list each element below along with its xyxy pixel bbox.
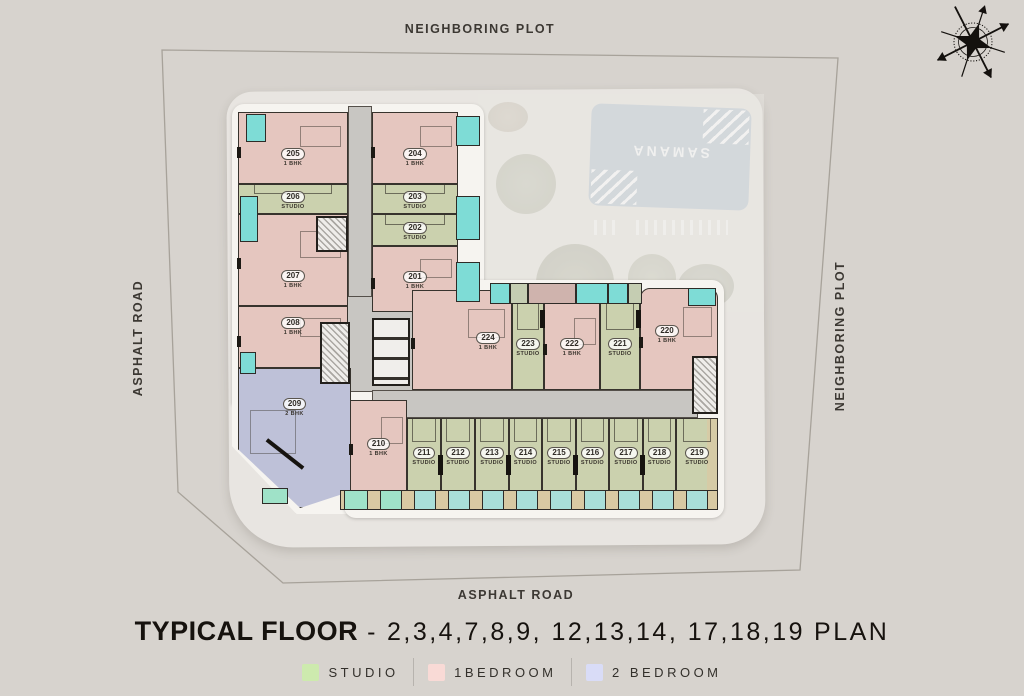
wall-segment bbox=[506, 455, 511, 475]
wall-segment bbox=[438, 455, 443, 475]
compass-rose-icon bbox=[930, 4, 1016, 80]
corridor-vertical bbox=[348, 106, 372, 298]
unit-204: 2041 BHK bbox=[372, 112, 458, 184]
legend-item-1bedroom: 1BEDROOM bbox=[428, 664, 556, 681]
balcony bbox=[628, 283, 642, 304]
balcony bbox=[246, 114, 266, 142]
balcony bbox=[414, 490, 436, 510]
balcony bbox=[584, 490, 606, 510]
legend-item-studio: STUDIO bbox=[302, 664, 398, 681]
pool-loungers bbox=[636, 220, 728, 235]
page-title: TYPICAL FLOOR - 2,3,4,7,8,9, 12,13,14, 1… bbox=[0, 616, 1024, 647]
legend: STUDIO 1BEDROOM 2 BEDROOM bbox=[0, 658, 1024, 686]
balcony bbox=[688, 288, 716, 306]
landscape-blob bbox=[488, 102, 528, 132]
pool-brand-text: SAMANA bbox=[590, 141, 750, 163]
legend-divider bbox=[571, 658, 573, 686]
wall-segment bbox=[540, 310, 545, 328]
staircase-core bbox=[692, 356, 718, 414]
unit-212: 212STUDIO bbox=[441, 418, 475, 492]
unit-215: 215STUDIO bbox=[542, 418, 576, 492]
wall-segment bbox=[636, 310, 641, 328]
balcony bbox=[240, 196, 258, 242]
elevator-bank bbox=[372, 318, 410, 386]
balcony bbox=[344, 490, 368, 510]
balcony bbox=[652, 490, 674, 510]
swimming-pool: SAMANA bbox=[588, 103, 751, 211]
balcony bbox=[456, 262, 480, 302]
balcony bbox=[686, 490, 708, 510]
neighboring-plot-label-top: NEIGHBORING PLOT bbox=[405, 22, 555, 36]
pool-steps-marking bbox=[590, 169, 637, 205]
balcony bbox=[608, 283, 628, 304]
unit-210: 2101 BHK bbox=[350, 400, 407, 492]
staircase-core bbox=[316, 216, 348, 252]
balcony bbox=[490, 283, 510, 304]
pool-loungers bbox=[594, 220, 620, 235]
unit-211: 211STUDIO bbox=[407, 418, 441, 492]
unit-213: 213STUDIO bbox=[475, 418, 509, 492]
title-floor-numbers: 2,3,4,7,8,9, 12,13,14, 17,18,19 bbox=[387, 618, 805, 647]
asphalt-road-label-bottom: ASPHALT ROAD bbox=[458, 588, 574, 602]
legend-item-2bedroom: 2 BEDROOM bbox=[586, 664, 722, 681]
balcony bbox=[456, 196, 480, 240]
studio-color-swatch bbox=[302, 664, 319, 681]
balcony bbox=[482, 490, 504, 510]
balcony bbox=[380, 490, 402, 510]
balcony bbox=[240, 352, 256, 374]
unit-214: 214STUDIO bbox=[509, 418, 542, 492]
balcony bbox=[262, 488, 288, 504]
balcony bbox=[576, 283, 608, 304]
staircase-core bbox=[320, 322, 350, 384]
asphalt-road-label-left: ASPHALT ROAD bbox=[131, 280, 145, 396]
balcony bbox=[448, 490, 470, 510]
neighboring-plot-label-right: NEIGHBORING PLOT bbox=[833, 261, 847, 411]
title-main: TYPICAL FLOOR bbox=[135, 616, 359, 647]
legend-divider bbox=[413, 658, 415, 686]
corridor-horizontal bbox=[372, 390, 698, 418]
one-bedroom-color-swatch bbox=[428, 664, 445, 681]
unit-216: 216STUDIO bbox=[576, 418, 609, 492]
unit-221: 221STUDIO bbox=[600, 302, 640, 390]
unit-224: 2241 BHK bbox=[412, 290, 512, 390]
balcony bbox=[528, 283, 576, 304]
unit-217: 217STUDIO bbox=[609, 418, 643, 492]
balcony bbox=[550, 490, 572, 510]
unit-202: 202STUDIO bbox=[372, 214, 458, 246]
balcony bbox=[510, 283, 528, 304]
two-bedroom-color-swatch bbox=[586, 664, 603, 681]
title-suffix: PLAN bbox=[814, 618, 889, 647]
wall-segment bbox=[573, 455, 578, 475]
unit-222: 2221 BHK bbox=[544, 302, 600, 390]
wall-segment bbox=[640, 455, 645, 475]
balcony bbox=[618, 490, 640, 510]
floor-plan-page: SAMANA 2051 BHK 206STUDIO 2071 BHK 2081 … bbox=[0, 0, 1024, 696]
title-separator: - bbox=[367, 618, 378, 647]
balcony bbox=[516, 490, 538, 510]
unit-219: 219STUDIO bbox=[676, 418, 718, 492]
balcony bbox=[456, 116, 480, 146]
landscape-blob bbox=[496, 154, 556, 214]
pool-steps-marking bbox=[703, 109, 750, 145]
unit-203: 203STUDIO bbox=[372, 184, 458, 214]
unit-218: 218STUDIO bbox=[643, 418, 676, 492]
